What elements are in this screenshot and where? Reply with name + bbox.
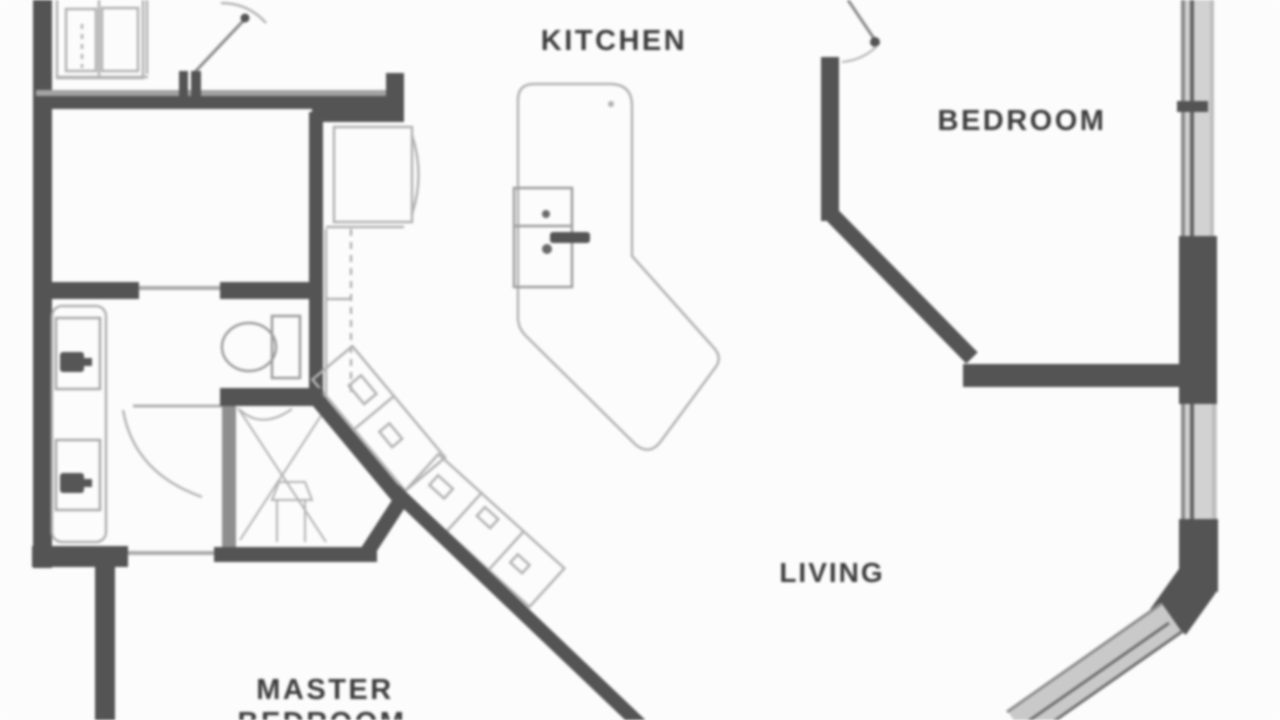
svg-text:KITCHEN: KITCHEN <box>541 25 687 57</box>
svg-text:BEDROOM: BEDROOM <box>938 105 1107 137</box>
svg-text:MASTER: MASTER <box>256 674 393 706</box>
svg-text:LIVING: LIVING <box>779 557 884 588</box>
svg-text:BEDROOM: BEDROOM <box>238 707 407 720</box>
